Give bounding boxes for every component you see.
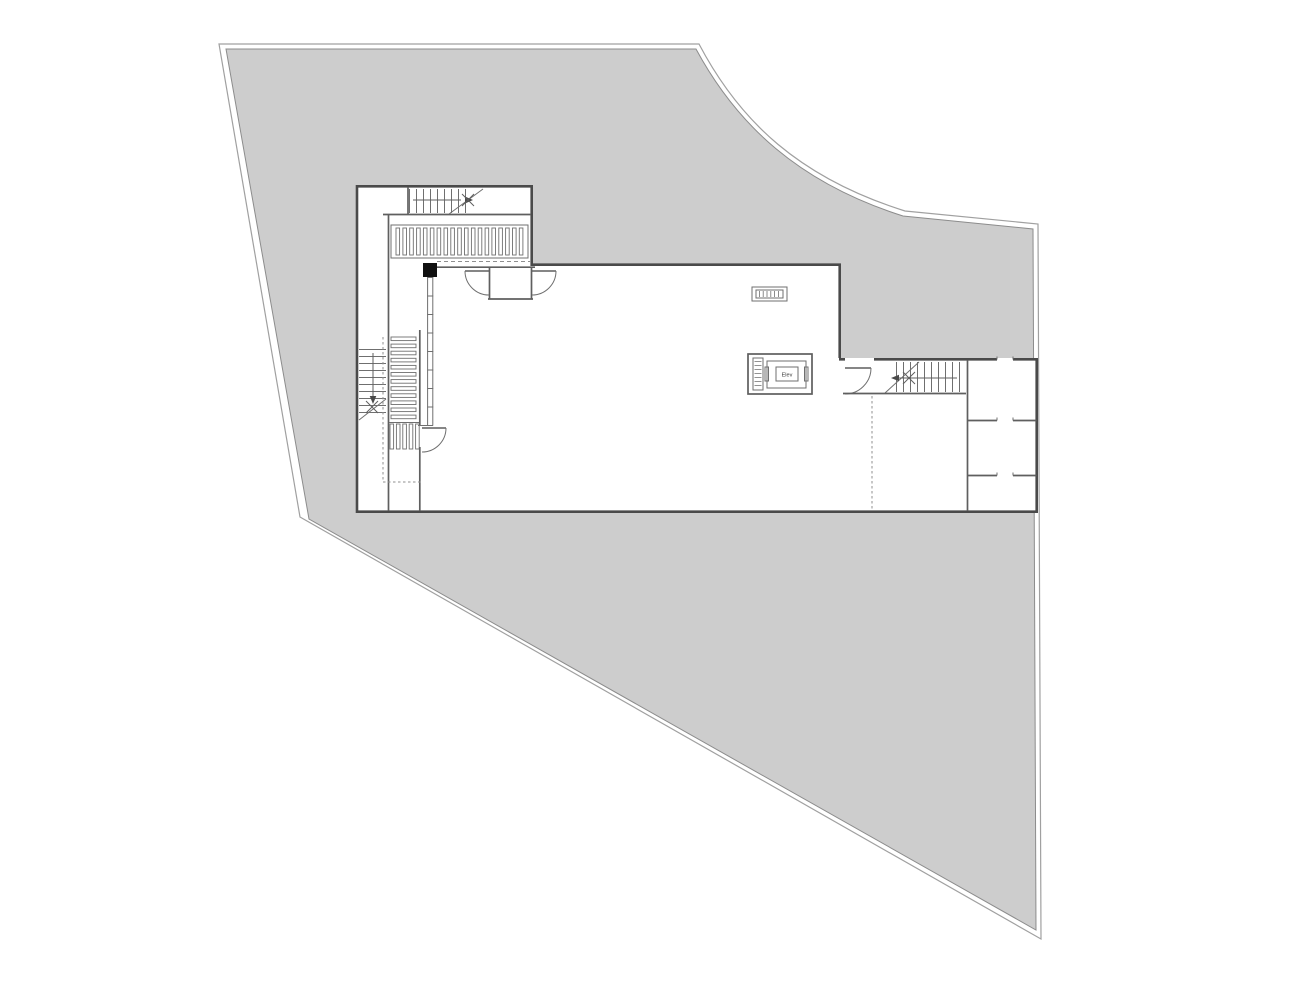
floor-plan-drawing: Elev bbox=[0, 0, 1308, 981]
louver-grille-top bbox=[391, 225, 528, 258]
elevator-label: Elev bbox=[782, 373, 793, 379]
structural-column bbox=[423, 263, 437, 277]
floor-plan-page: Elev bbox=[0, 0, 1308, 981]
